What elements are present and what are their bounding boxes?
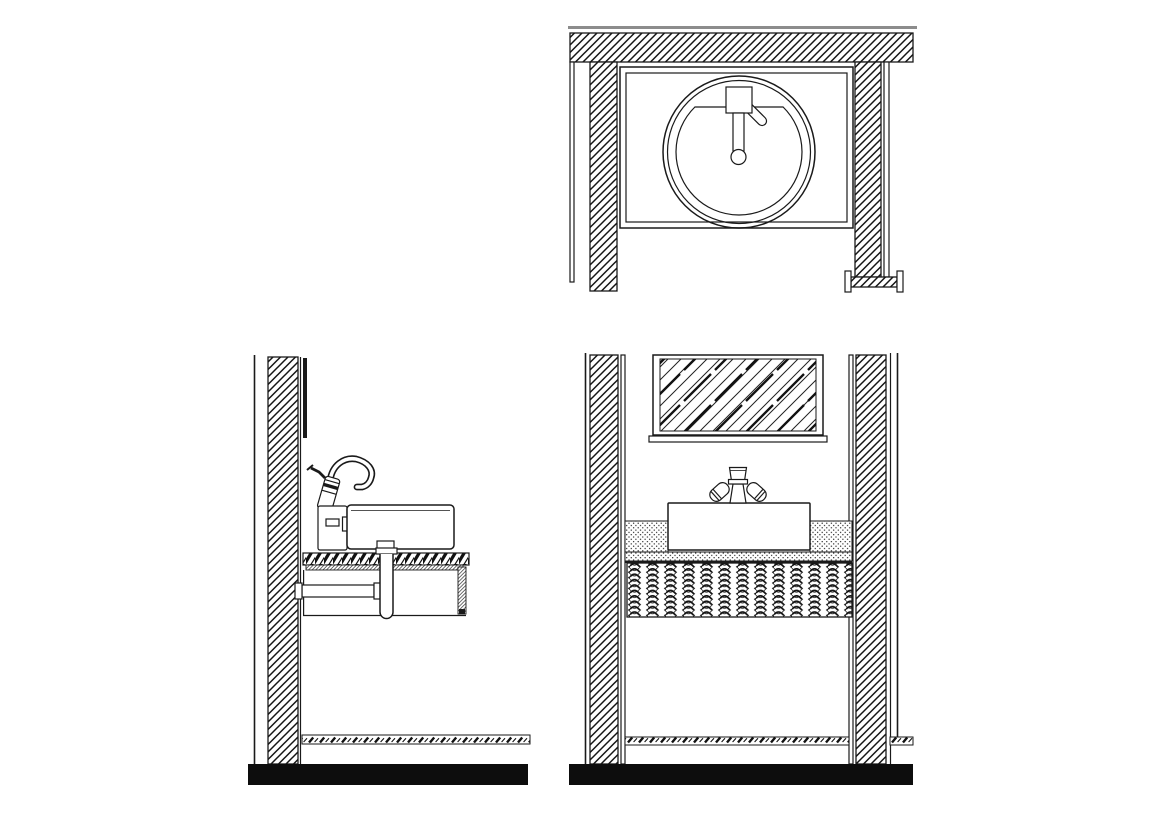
side-panel-foot bbox=[459, 609, 465, 614]
plan-right-column-hatch bbox=[855, 62, 881, 277]
front-left-wall-hatch bbox=[590, 355, 618, 764]
front-floor-slab bbox=[569, 764, 913, 785]
faucet-lever-side bbox=[311, 468, 325, 478]
front-baseboard-right-return bbox=[890, 737, 913, 745]
towel-bar-left-cap bbox=[295, 583, 302, 599]
flange-body bbox=[851, 277, 897, 287]
front-baseboard bbox=[625, 737, 849, 745]
side-vessel-sink bbox=[347, 505, 454, 549]
side-wall-hatch bbox=[268, 357, 298, 764]
technical-drawing bbox=[0, 0, 1169, 826]
side-elevation bbox=[248, 355, 530, 785]
plan-faucet-spout bbox=[733, 113, 744, 151]
front-backsplash-left bbox=[625, 521, 668, 552]
side-drain-collar bbox=[376, 548, 397, 554]
front-left-wall-inner-lines bbox=[621, 355, 625, 764]
mirror-sill bbox=[649, 436, 827, 442]
side-drain-pipe bbox=[380, 554, 393, 619]
mirror-glass-accent-lines bbox=[660, 359, 816, 431]
flange-left-plate bbox=[845, 271, 851, 292]
faucet-collar bbox=[729, 480, 748, 485]
plan-faucet-plate bbox=[726, 87, 752, 113]
faucet-body bbox=[730, 484, 746, 503]
front-mirror bbox=[649, 355, 827, 442]
front-elevation bbox=[569, 353, 913, 785]
side-faucet bbox=[307, 459, 372, 512]
side-mirror-edge bbox=[303, 358, 307, 438]
side-panel-edge bbox=[458, 567, 466, 614]
plan-left-wall-face-lines bbox=[570, 62, 574, 282]
front-right-wall-hatch bbox=[856, 355, 886, 764]
side-towel-bar bbox=[295, 583, 381, 599]
side-baseboard bbox=[302, 735, 530, 744]
plan-top-wall-hatch bbox=[570, 33, 913, 62]
front-faucet bbox=[707, 468, 768, 504]
front-vessel-sink bbox=[668, 503, 810, 550]
towel-bar-body bbox=[302, 585, 374, 597]
drawing-svg bbox=[0, 0, 1169, 826]
front-backsplash-right bbox=[810, 521, 852, 552]
plan-drain-circle bbox=[731, 150, 746, 165]
side-floor-slab bbox=[248, 764, 528, 785]
front-countertop-band bbox=[625, 552, 852, 561]
plan-right-wall-face-lines bbox=[884, 62, 889, 277]
plan-ceiling-gray-line bbox=[568, 26, 917, 29]
plan-left-column-hatch bbox=[590, 62, 617, 291]
plan-view bbox=[568, 26, 917, 292]
front-apron-panel bbox=[627, 563, 852, 617]
flange-right-plate bbox=[897, 271, 903, 292]
